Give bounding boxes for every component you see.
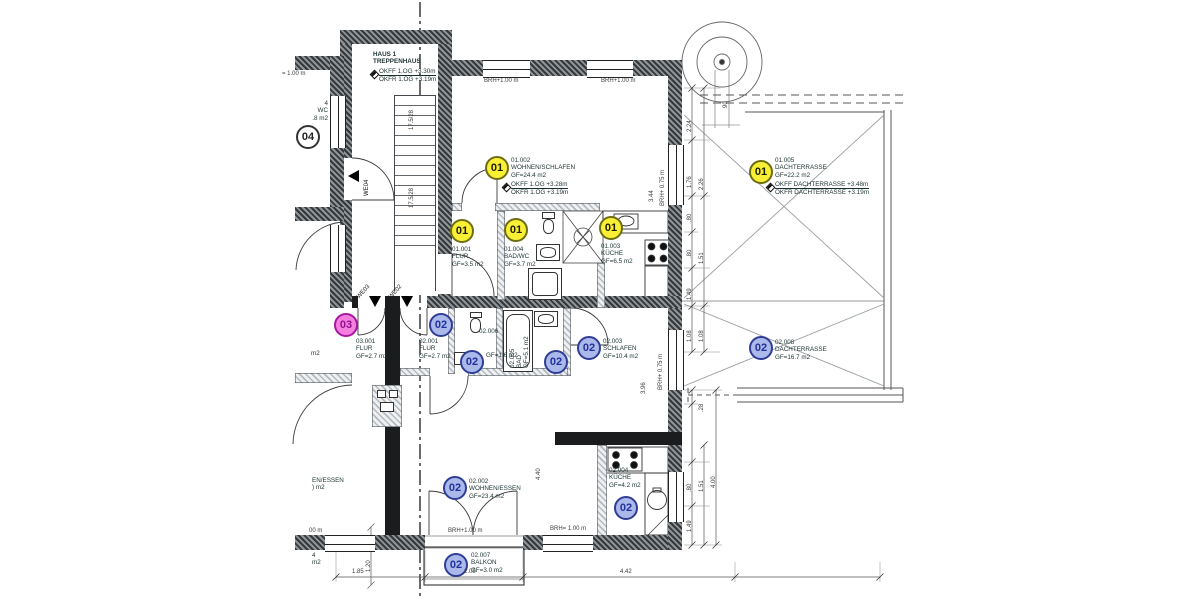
room-name: DACHTERRASSE bbox=[775, 164, 827, 171]
room-name: FLUR bbox=[419, 345, 451, 352]
dim-right: 1.49 bbox=[687, 288, 693, 300]
dim-right: 1.08 bbox=[699, 330, 705, 342]
room-label-01-005: 01.005 DACHTERRASSE GF=22.2 m2 bbox=[775, 157, 827, 179]
okff-line: OKFF 1.OG +3.30m bbox=[379, 68, 436, 76]
stairwell-title: HAUS 1 TREPPENHAUS bbox=[373, 51, 421, 66]
okfr-line: OKFR DACHTERRASSE +3.19m bbox=[775, 189, 869, 196]
wall-interior bbox=[597, 263, 605, 308]
room-name-fragment: EN/ESSEN bbox=[312, 477, 344, 484]
okfr-line: OKFR 1.OG +3.19m bbox=[379, 76, 436, 83]
wall bbox=[452, 60, 483, 76]
wall bbox=[295, 535, 325, 550]
room-label-02-001: 02.001 FLUR GF=2.7 m2 bbox=[419, 338, 451, 360]
door-arc-flur02 bbox=[430, 376, 468, 414]
wall bbox=[295, 207, 344, 221]
brh-label: = 1.00 m bbox=[282, 71, 306, 77]
room-area: GF=10.4 m2 bbox=[603, 353, 638, 360]
room-name: KÜCHE bbox=[601, 250, 633, 257]
brh-label: BRH= 1.00 m bbox=[550, 526, 586, 532]
unit-badge-02-wohnen: 02 bbox=[443, 476, 467, 500]
room-label-02-008: 02.008 DACHTERRASSE GF=16.7 m2 bbox=[775, 339, 827, 361]
stair-note-lower: 17.5/28 bbox=[409, 188, 415, 208]
dim-right: .80 bbox=[687, 214, 693, 222]
room-name: SCHLAFEN bbox=[603, 345, 638, 352]
wall bbox=[555, 432, 682, 445]
shaft-01 bbox=[563, 211, 603, 263]
room-area-fragment: ) m2 bbox=[312, 484, 344, 491]
window bbox=[325, 535, 375, 552]
entrance-label-we04: WE04 bbox=[364, 180, 370, 196]
room-name: KÜCHE bbox=[609, 474, 641, 481]
wall bbox=[633, 60, 682, 76]
wall bbox=[295, 56, 330, 70]
room-label-04-partial: 4 WC .8 m2 bbox=[298, 100, 328, 122]
room-area: GF=4.2 m2 bbox=[609, 482, 641, 489]
wall bbox=[330, 148, 344, 207]
washbasin-02-bowl bbox=[538, 314, 554, 324]
dim-bottom-2: 2.05 bbox=[464, 569, 476, 575]
room-id: 02.002 bbox=[469, 478, 521, 485]
room-label-02-005: 02.005 BAD GF=5.1 m2 bbox=[509, 336, 531, 368]
room-area: GF=24.4 m2 bbox=[511, 172, 575, 179]
unit-badge-02-kueche: 02 bbox=[614, 496, 638, 520]
wall-interior bbox=[597, 445, 607, 537]
room-id: 01.001 bbox=[452, 246, 484, 253]
room-label-01-002: 01.002 WOHNEN/SCHLAFEN GF=24.4 m2 bbox=[511, 157, 575, 179]
room-id-fragment: 4 bbox=[298, 100, 328, 107]
wall bbox=[340, 30, 452, 44]
floor-plan: 01 01 01 01 01 02 03 02 02 02 02 02 02 0… bbox=[0, 0, 1200, 600]
shaft-detail bbox=[389, 390, 398, 398]
dim-right: 2.26 bbox=[699, 178, 705, 190]
door-arc-left-unit-lower bbox=[293, 385, 352, 444]
wall bbox=[668, 522, 682, 550]
entrance-arrow-we04-icon bbox=[348, 170, 359, 182]
room-area-fragment: .8 m2 bbox=[298, 115, 328, 122]
dim-room: 3.44 bbox=[649, 190, 655, 202]
okff-line: OKFF 1.OG +3.28m bbox=[511, 181, 568, 189]
unit-badge-04-partial: 04 bbox=[296, 125, 320, 149]
room-id: 02.008 bbox=[775, 339, 827, 346]
room-label-02-002: 02.002 WOHNEN/ESSEN GF=23.4 m2 bbox=[469, 478, 521, 500]
room-name: WOHNEN/SCHLAFEN bbox=[511, 164, 575, 171]
room-id: 01.004 bbox=[504, 246, 536, 253]
unit-badge-01-flur: 01 bbox=[450, 219, 474, 243]
brh-label: BRH+1.00 m bbox=[448, 528, 483, 534]
room-label-02-003: 02.003 SCHLAFEN GF=10.4 m2 bbox=[603, 338, 638, 360]
wall bbox=[593, 535, 668, 550]
unit-badge-01-bad: 01 bbox=[504, 218, 528, 242]
room-area: GF=2.7 m2 bbox=[419, 353, 451, 360]
shower-01-tray bbox=[532, 272, 558, 296]
window bbox=[543, 535, 593, 552]
window bbox=[668, 330, 684, 390]
window bbox=[668, 145, 684, 205]
toilet-01-tank bbox=[542, 212, 555, 219]
dim-balcony-depth: 1.20 bbox=[366, 560, 372, 572]
room-id: 01.002 bbox=[511, 157, 575, 164]
room-id: 02.007 bbox=[471, 552, 503, 559]
room-label-02-004: 02.004 KÜCHE GF=4.2 m2 bbox=[609, 467, 641, 489]
toilet-01-bowl bbox=[543, 219, 554, 234]
wall-interior bbox=[496, 308, 503, 374]
brh-label: BRH+1.00 m bbox=[484, 78, 519, 84]
window bbox=[587, 60, 633, 78]
room-id: 03.001 bbox=[356, 338, 388, 345]
unit-badge-02-schlafen: 02 bbox=[577, 336, 601, 360]
area-fragment: m2 bbox=[311, 350, 320, 357]
dim-right: .28 bbox=[699, 404, 705, 412]
room-id: 02.005 bbox=[509, 336, 516, 368]
dim-right: .80 bbox=[687, 250, 693, 258]
wall-interior bbox=[400, 368, 430, 376]
dim-right: 1.51 bbox=[699, 480, 705, 492]
room-name: BAD bbox=[516, 336, 523, 368]
room-name: DACHTERRASSE bbox=[775, 346, 827, 353]
dim-right: 2.24 bbox=[687, 120, 693, 132]
sink-02 bbox=[648, 491, 667, 510]
room-area: GF=16.7 m2 bbox=[775, 354, 827, 361]
wall bbox=[530, 60, 587, 76]
room-area: GF=22.2 m2 bbox=[775, 172, 827, 179]
room-id: 02.001 bbox=[419, 338, 451, 345]
room-label-03-001: 03.001 FLUR GF=2.7 m2 bbox=[356, 338, 388, 360]
unit-badge-01-wohnen: 01 bbox=[485, 156, 509, 180]
dim-right: 1.49 bbox=[687, 520, 693, 532]
brh-label: 00 m bbox=[309, 528, 322, 534]
room-name: BALKON bbox=[471, 559, 503, 566]
window bbox=[668, 472, 684, 522]
unit-badge-01-terrasse: 01 bbox=[749, 160, 773, 184]
dim-right: 1.51 bbox=[699, 252, 705, 264]
okfr-line: OKFR 1.OG +3.19m bbox=[511, 189, 568, 196]
room-name: FLUR bbox=[356, 345, 388, 352]
room-name: BAD/WC bbox=[504, 253, 536, 260]
room-area: GF=5.1 m2 bbox=[523, 336, 530, 368]
dim-bottom-3: 4.42 bbox=[620, 569, 632, 575]
unit-badge-01-kueche: 01 bbox=[599, 216, 623, 240]
room-id: 02.006 bbox=[479, 328, 498, 335]
kitchen-02-fixtures bbox=[606, 447, 668, 535]
wall-interior bbox=[452, 203, 462, 211]
brh-label-vertical: BRH+ 0.75 m bbox=[658, 354, 664, 390]
wall bbox=[523, 535, 543, 550]
door-arc-we02 bbox=[400, 308, 427, 335]
wall bbox=[438, 44, 452, 254]
dim-right: 4.00 bbox=[711, 476, 717, 488]
stair-note-upper: 17.5/28 bbox=[409, 110, 415, 130]
room-id-fragment: 4 bbox=[312, 552, 321, 559]
level-note-01-005: OKFF DACHTERRASSE +3.48m OKFR DACHTERRAS… bbox=[775, 181, 869, 197]
dim-right: 1.76 bbox=[687, 176, 693, 188]
level-note-01-002: OKFF 1.OG +3.28m OKFR 1.OG +3.19m bbox=[511, 181, 568, 197]
room-name: WOHNEN/ESSEN bbox=[469, 485, 521, 492]
dim-bottom-1: 1.85 bbox=[352, 569, 364, 575]
room-id: 02.003 bbox=[603, 338, 638, 345]
shaft-detail bbox=[380, 402, 394, 412]
unit-badge-02-terrasse: 02 bbox=[749, 336, 773, 360]
stove-01 bbox=[645, 240, 670, 265]
room-label-01-001: 01.001 FLUR GF=3.5 m2 bbox=[452, 246, 484, 268]
room-area: GF=3.5 m2 bbox=[452, 261, 484, 268]
window bbox=[330, 225, 346, 272]
washbasin-01-bowl bbox=[540, 247, 556, 258]
room-area: GF=3.7 m2 bbox=[504, 261, 536, 268]
dim-room: 4.40 bbox=[536, 468, 542, 480]
entrance-arrow-we03-icon bbox=[369, 296, 381, 307]
brh-label: BRH+1.00 m bbox=[601, 78, 636, 84]
room-name-fragment: WC bbox=[298, 107, 328, 114]
wall bbox=[375, 535, 425, 550]
wall bbox=[330, 272, 344, 308]
room-area: GF=23.4 m2 bbox=[469, 493, 521, 500]
wall-interior bbox=[295, 373, 352, 383]
balcony-threshold bbox=[425, 536, 523, 548]
dim-right: 1.08 bbox=[687, 330, 693, 342]
door-arc-we03 bbox=[358, 308, 385, 335]
room-label-left-essen-partial: EN/ESSEN ) m2 bbox=[312, 477, 344, 492]
unit-badge-02-wc: 02 bbox=[460, 350, 484, 374]
unit-badge-02-flur: 02 bbox=[429, 313, 453, 337]
room-label-02-006-id: 02.006 bbox=[479, 328, 498, 335]
dim-room: 3.96 bbox=[641, 382, 647, 394]
entrance-arrow-we02-icon bbox=[401, 296, 413, 307]
dimension-chain-bottom bbox=[333, 524, 884, 589]
unit-badge-02-bad: 02 bbox=[544, 350, 568, 374]
wall bbox=[668, 205, 682, 330]
room-label-01-003: 01.003 KÜCHE GF=6.5 m2 bbox=[601, 243, 633, 265]
stairwell-line2: TREPPENHAUS bbox=[373, 58, 421, 65]
wall bbox=[668, 76, 682, 145]
window bbox=[330, 96, 346, 148]
room-area-fragment: m2 bbox=[312, 559, 321, 566]
wall bbox=[668, 445, 682, 472]
room-label-left-low-partial: 4 m2 bbox=[312, 552, 321, 567]
brh-label-vertical: BRH+ 0.75 m bbox=[660, 170, 666, 206]
wall bbox=[330, 56, 344, 96]
room-area: GF=2.7 m2 bbox=[356, 353, 388, 360]
wall-interior bbox=[495, 203, 600, 211]
okff-line: OKFF DACHTERRASSE +3.48m bbox=[775, 181, 869, 189]
room-area: GF=6.5 m2 bbox=[601, 258, 633, 265]
shaft-detail bbox=[377, 390, 386, 398]
room-label-01-004: 01.004 BAD/WC GF=3.7 m2 bbox=[504, 246, 536, 268]
dim-right: .80 bbox=[687, 484, 693, 492]
room-id: 01.005 bbox=[775, 157, 827, 164]
unit-badge-03-flur: 03 bbox=[334, 313, 358, 337]
dim-roof-circle: 90 bbox=[723, 101, 729, 108]
window bbox=[483, 60, 530, 78]
stairwell-line1: HAUS 1 bbox=[373, 51, 421, 58]
room-name: FLUR bbox=[452, 253, 484, 260]
stairwell-levels: OKFF 1.OG +3.30m OKFR 1.OG +3.19m bbox=[379, 68, 436, 84]
